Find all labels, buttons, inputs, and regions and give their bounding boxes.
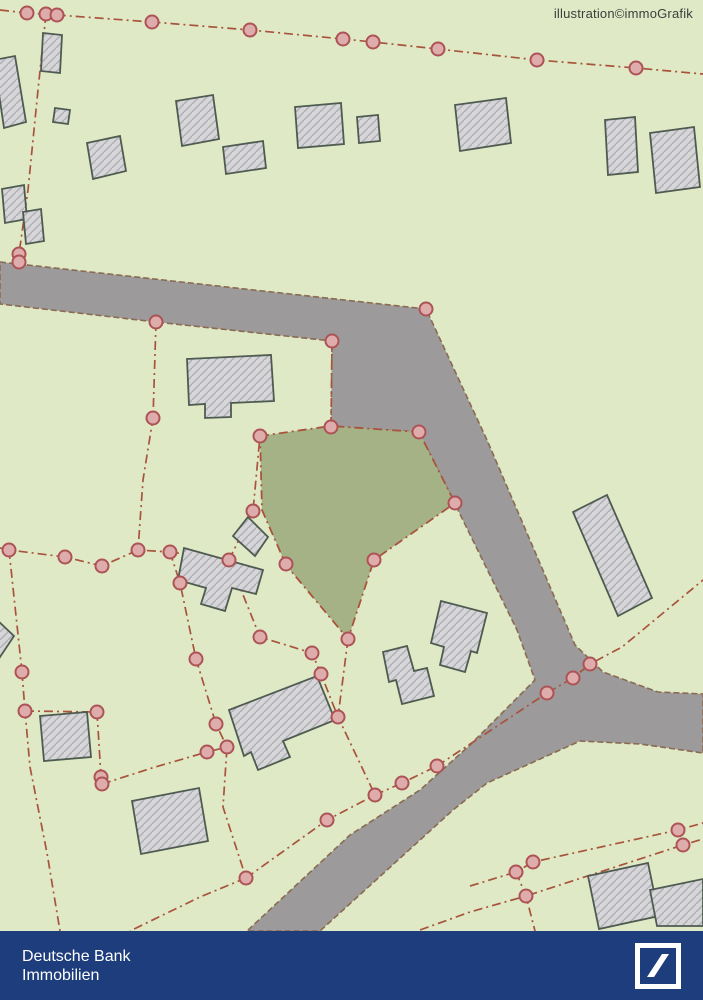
boundary-marker bbox=[567, 672, 580, 685]
boundary-marker bbox=[677, 839, 690, 852]
building bbox=[41, 33, 62, 73]
building bbox=[588, 863, 659, 929]
building bbox=[605, 117, 638, 175]
boundary-marker bbox=[510, 866, 523, 879]
brand-line-2: Immobilien bbox=[22, 966, 131, 985]
boundary-marker bbox=[672, 824, 685, 837]
boundary-marker bbox=[520, 890, 533, 903]
building bbox=[223, 141, 266, 174]
boundary-marker bbox=[174, 577, 187, 590]
boundary-marker bbox=[164, 546, 177, 559]
boundary-marker bbox=[367, 36, 380, 49]
boundary-marker bbox=[221, 741, 234, 754]
watermark-credit: illustration©immoGrafik bbox=[554, 6, 693, 21]
boundary-marker bbox=[584, 658, 597, 671]
boundary-marker bbox=[96, 778, 109, 791]
boundary-marker bbox=[146, 16, 159, 29]
boundary-marker bbox=[368, 554, 381, 567]
boundary-marker bbox=[21, 7, 34, 20]
boundary-marker bbox=[16, 666, 29, 679]
building bbox=[295, 103, 344, 148]
boundary-marker bbox=[306, 647, 319, 660]
building bbox=[455, 98, 511, 151]
boundary-marker bbox=[190, 653, 203, 666]
boundary-marker bbox=[210, 718, 223, 731]
boundary-marker bbox=[321, 814, 334, 827]
boundary-marker bbox=[332, 711, 345, 724]
boundary-marker bbox=[325, 421, 338, 434]
boundary-marker bbox=[527, 856, 540, 869]
boundary-marker bbox=[315, 668, 328, 681]
boundary-marker bbox=[223, 554, 236, 567]
building bbox=[53, 108, 70, 124]
boundary-marker bbox=[531, 54, 544, 67]
boundary-marker bbox=[413, 426, 426, 439]
brand-line-1: Deutsche Bank bbox=[22, 947, 131, 966]
boundary-marker bbox=[59, 551, 72, 564]
building bbox=[650, 127, 700, 193]
boundary-marker bbox=[244, 24, 257, 37]
boundary-marker bbox=[432, 43, 445, 56]
boundary-marker bbox=[254, 631, 267, 644]
footer-bar: Deutsche Bank Immobilien bbox=[0, 931, 703, 1000]
boundary-marker bbox=[13, 256, 26, 269]
boundary-marker bbox=[91, 706, 104, 719]
boundary-marker bbox=[254, 430, 267, 443]
boundary-marker bbox=[337, 33, 350, 46]
boundary-marker bbox=[3, 544, 16, 557]
site-plan-svg bbox=[0, 0, 703, 931]
site-plan-map: illustration©immoGrafik bbox=[0, 0, 703, 931]
boundary-marker bbox=[280, 558, 293, 571]
boundary-marker bbox=[51, 9, 64, 22]
boundary-marker bbox=[541, 687, 554, 700]
boundary-marker bbox=[240, 872, 253, 885]
building bbox=[87, 136, 126, 179]
deutsche-bank-logo-icon bbox=[635, 943, 681, 989]
boundary-marker bbox=[420, 303, 433, 316]
boundary-marker bbox=[342, 633, 355, 646]
boundary-marker bbox=[201, 746, 214, 759]
boundary-marker bbox=[150, 316, 163, 329]
boundary-marker bbox=[630, 62, 643, 75]
boundary-marker bbox=[96, 560, 109, 573]
building bbox=[357, 115, 380, 143]
boundary-marker bbox=[132, 544, 145, 557]
brand-text: Deutsche Bank Immobilien bbox=[22, 947, 131, 985]
boundary-marker bbox=[449, 497, 462, 510]
building bbox=[40, 712, 91, 761]
boundary-marker bbox=[147, 412, 160, 425]
boundary-marker bbox=[326, 335, 339, 348]
boundary-marker bbox=[247, 505, 260, 518]
boundary-marker bbox=[369, 789, 382, 802]
building bbox=[23, 209, 44, 244]
boundary-marker bbox=[396, 777, 409, 790]
boundary-marker bbox=[431, 760, 444, 773]
boundary-marker bbox=[19, 705, 32, 718]
building bbox=[132, 788, 208, 854]
building bbox=[176, 95, 219, 146]
